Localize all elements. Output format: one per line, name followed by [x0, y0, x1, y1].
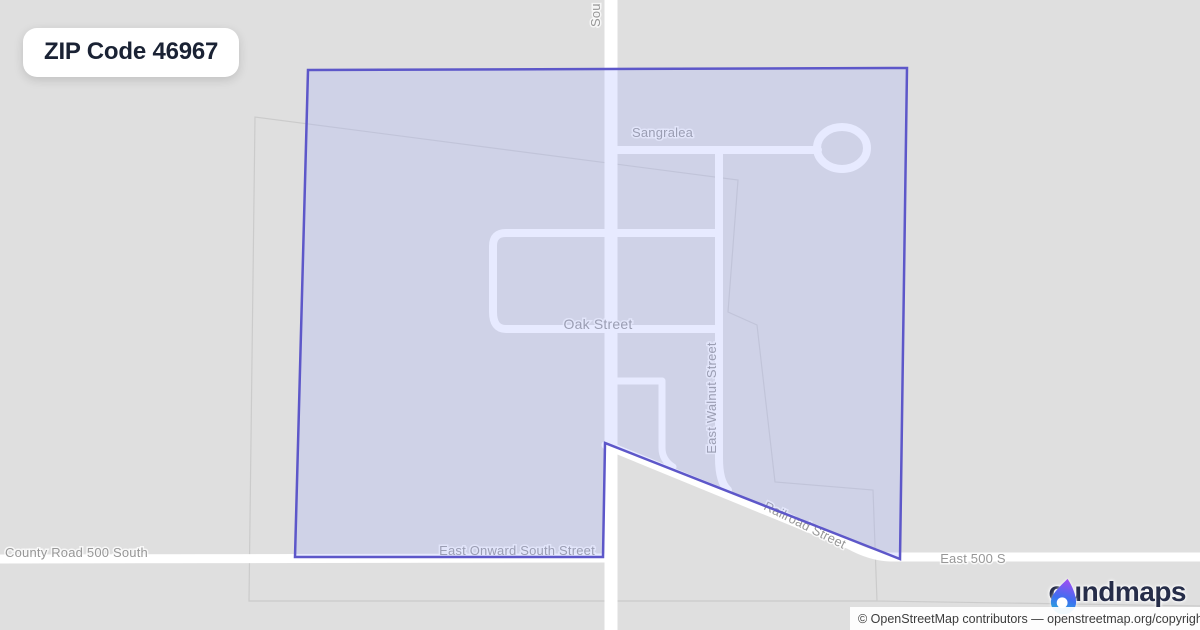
zip-badge: ZIP Code 46967 [23, 28, 239, 77]
county-road-500-south-label: County Road 500 South [5, 545, 148, 560]
zip-badge-label: ZIP Code 46967 [44, 38, 218, 65]
osm-attribution-text: © OpenStreetMap contributors — openstree… [858, 612, 1200, 626]
map-canvas: Sou Sangralea Oak Street East Walnut Str… [0, 0, 1200, 630]
zip-boundary-polygon [295, 68, 907, 559]
south-main-street-label: Sou [588, 3, 603, 27]
east-500-s-label: East 500 S [940, 551, 1006, 566]
attribution-bar: © OpenStreetMap contributors — openstree… [850, 607, 1200, 630]
map-svg: Sou Sangralea Oak Street East Walnut Str… [0, 0, 1200, 630]
boundmaps-logo: oundmaps [1048, 578, 1186, 606]
